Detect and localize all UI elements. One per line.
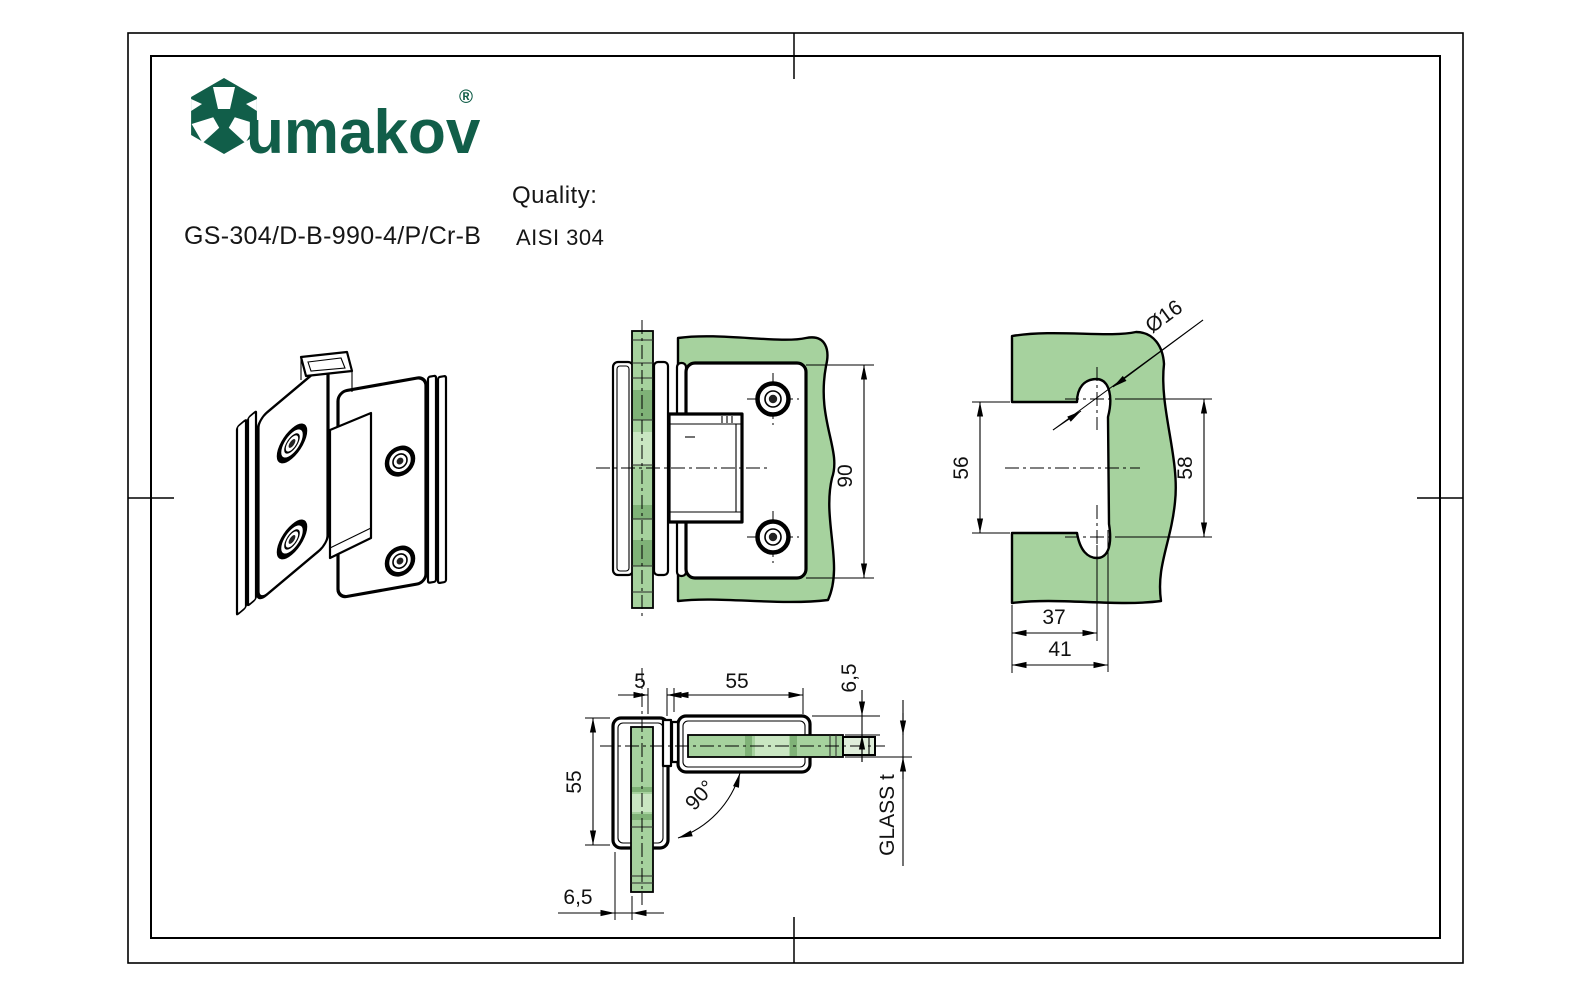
iso-left-glass-edge — [237, 411, 256, 615]
isometric-view — [237, 352, 446, 615]
brand-logo: umakov ® — [191, 78, 481, 167]
iso-right-glass-edge — [428, 374, 446, 585]
top-dim-glass-thickness: GLASS t — [876, 774, 899, 856]
top-view: 5 55 6,5 GLASS t 90° 55 6,5 — [558, 663, 912, 920]
quality-value: AISI 304 — [516, 225, 604, 250]
registered-mark: ® — [459, 87, 473, 108]
cutout-dim-height: 56 — [950, 456, 973, 479]
technical-drawing: umakov ® GS-304/D-B-990-4/P/Cr-B Quality… — [0, 0, 1590, 997]
top-dim-offset-top: 6,5 — [838, 663, 861, 692]
top-dim-angle: 90° — [681, 776, 719, 815]
front-edge-assembly — [613, 331, 668, 608]
glass-cutout-view: Ø16 56 58 37 41 — [950, 296, 1212, 673]
cutout-dim-offset41: 41 — [1048, 638, 1071, 661]
cutout-dim-hole-centers: 58 — [1174, 456, 1197, 479]
top-dim-length: 55 — [725, 670, 748, 693]
front-dim-height: 90 — [834, 464, 857, 487]
quality-label: Quality: — [512, 182, 597, 209]
product-code: GS-304/D-B-990-4/P/Cr-B — [184, 222, 481, 250]
cutout-dim-diameter: Ø16 — [1141, 296, 1187, 338]
top-dim-offset-bottom: 6,5 — [563, 886, 592, 909]
top-dim-gap: 5 — [634, 670, 646, 693]
iso-left-plate — [258, 361, 328, 602]
drawing-page: umakov ® GS-304/D-B-990-4/P/Cr-B Quality… — [0, 0, 1590, 997]
front-view: 90 — [596, 320, 874, 618]
brand-name: umakov — [246, 98, 481, 167]
top-dim-length-left: 55 — [563, 770, 586, 793]
top-knuckle — [663, 720, 678, 766]
cutout-dim-offset37: 37 — [1042, 606, 1065, 629]
